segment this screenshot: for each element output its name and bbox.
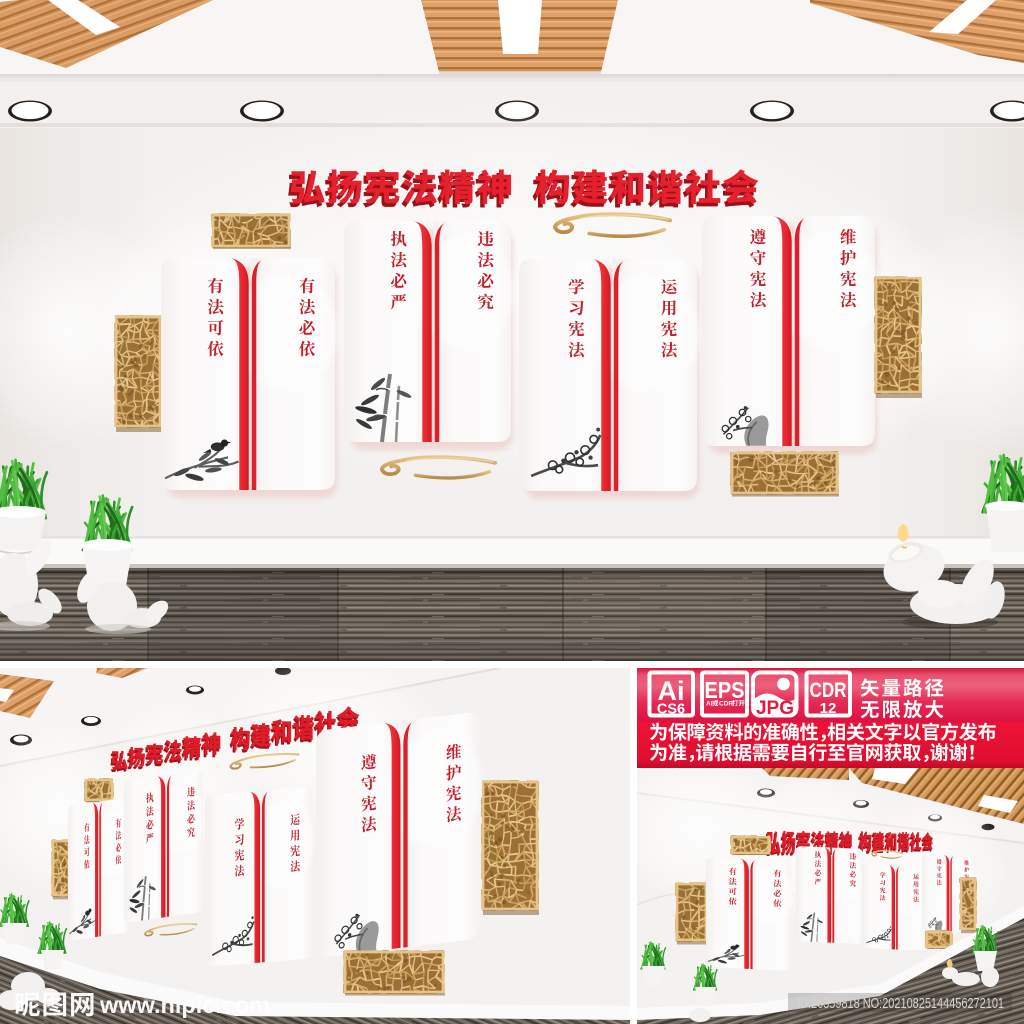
svg-text:AI: AI <box>706 701 713 708</box>
svg-text:ID:26359818 NO:202108251444562: ID:26359818 NO:20210825144456272101 <box>797 996 1004 1012</box>
svg-text:JPG: JPG <box>756 698 794 719</box>
svg-text:CDR: CDR <box>719 701 733 708</box>
svg-text:www.nipic.com: www.nipic.com <box>99 992 270 1018</box>
svg-text:EPS: EPS <box>705 677 745 703</box>
svg-text:CS6: CS6 <box>657 702 685 718</box>
svg-text:12: 12 <box>820 700 837 717</box>
svg-text:CDR: CDR <box>810 679 847 702</box>
